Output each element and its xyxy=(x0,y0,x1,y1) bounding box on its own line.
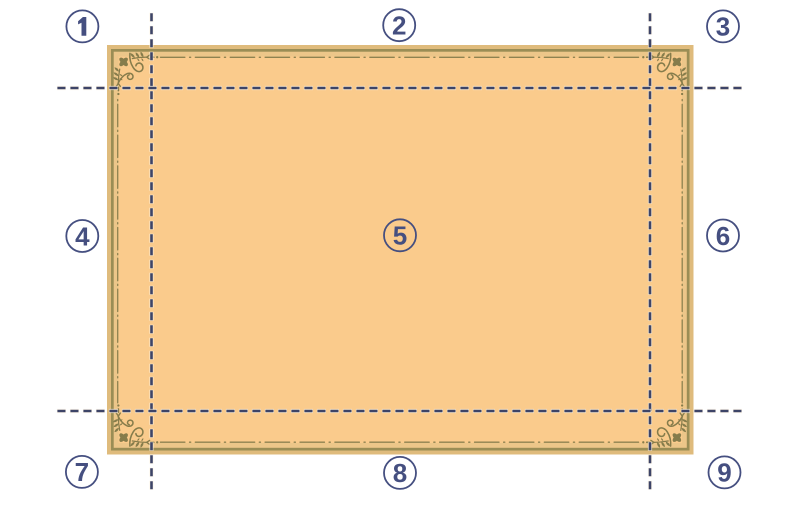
svg-text:9: 9 xyxy=(717,458,731,488)
svg-text:4: 4 xyxy=(75,221,90,251)
svg-text:2: 2 xyxy=(392,11,406,41)
svg-text:5: 5 xyxy=(393,221,407,251)
svg-text:3: 3 xyxy=(716,12,730,42)
svg-text:6: 6 xyxy=(716,221,730,251)
svg-text:7: 7 xyxy=(75,457,89,487)
svg-text:8: 8 xyxy=(393,458,407,488)
